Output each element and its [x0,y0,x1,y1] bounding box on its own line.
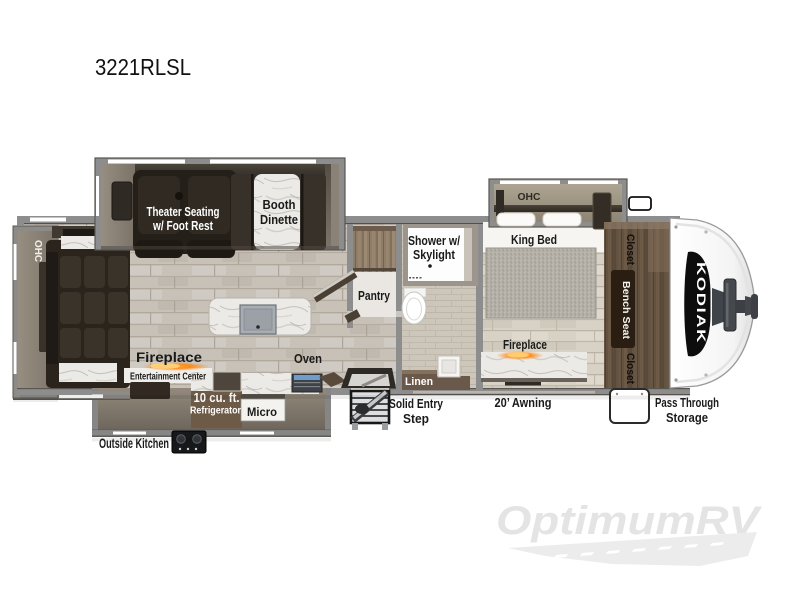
svg-text:King Bed: King Bed [511,232,557,247]
svg-text:Dinette: Dinette [260,213,298,227]
svg-text:Refrigerator: Refrigerator [190,406,241,417]
svg-text:Booth: Booth [263,198,296,212]
svg-text:3221RLSL: 3221RLSL [95,54,191,80]
svg-text:Fireplace: Fireplace [503,337,547,352]
svg-text:Shower w/: Shower w/ [408,234,460,248]
svg-text:Theater Seating: Theater Seating [147,205,220,219]
svg-text:w/ Foot Rest: w/ Foot Rest [152,219,213,233]
svg-text:Closet: Closet [624,353,636,384]
svg-text:Linen: Linen [405,376,433,388]
svg-text:Bench Seat: Bench Seat [620,281,632,340]
svg-text:Pantry: Pantry [358,289,390,303]
svg-text:Closet: Closet [624,234,636,265]
svg-text:OHC: OHC [518,191,541,203]
svg-text:Storage: Storage [666,410,708,425]
svg-text:Skylight: Skylight [413,248,456,262]
svg-text:20’ Awning: 20’ Awning [495,395,552,410]
svg-text:Micro: Micro [247,405,277,419]
svg-text:KODIAK: KODIAK [694,262,706,344]
svg-text:Fireplace: Fireplace [136,349,202,365]
svg-text:Oven: Oven [294,351,322,366]
svg-text:Entertainment Center: Entertainment Center [130,372,206,383]
svg-text:Step: Step [403,411,429,426]
svg-text:OHC: OHC [32,240,44,262]
